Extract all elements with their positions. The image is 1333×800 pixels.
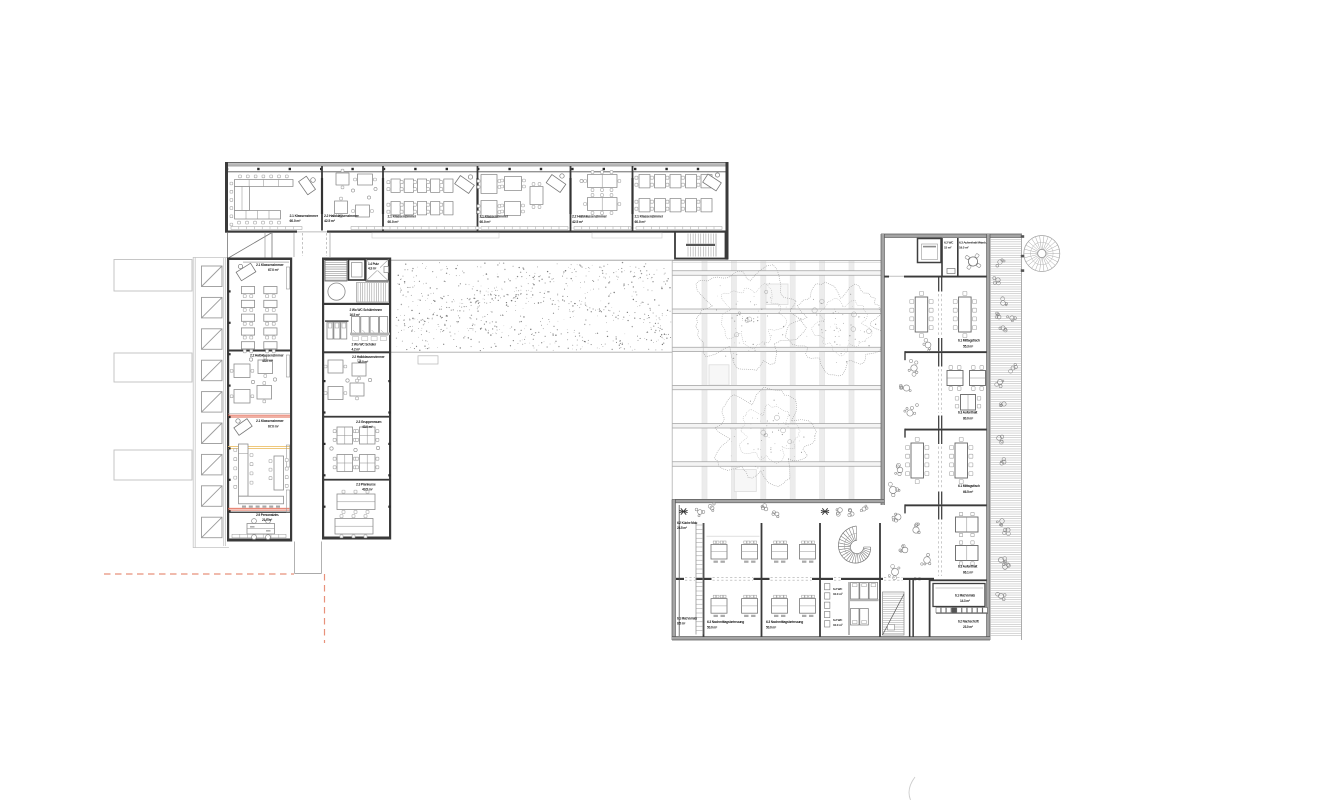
svg-text:2.1 Klassenzimmer: 2.1 Klassenzimmer — [290, 214, 319, 218]
svg-text:50.0 m²: 50.0 m² — [766, 626, 777, 630]
svg-text:14.3 m²: 14.3 m² — [960, 599, 970, 603]
svg-text:15 m²: 15 m² — [944, 246, 951, 250]
svg-text:43.0 m²: 43.0 m² — [262, 359, 273, 363]
svg-text:42.5 m²: 42.5 m² — [572, 220, 584, 224]
svg-text:2.9 Personalzim.: 2.9 Personalzim. — [256, 513, 279, 517]
svg-text:24.5 m²: 24.5 m² — [677, 526, 687, 530]
svg-text:6.1 Mat.Vorrats: 6.1 Mat.Vorrats — [955, 594, 975, 598]
svg-text:80.0 m²: 80.0 m² — [963, 417, 974, 421]
svg-text:42.5 m²: 42.5 m² — [324, 219, 336, 223]
svg-text:2.1 Klassenzimmer: 2.1 Klassenzimmer — [256, 419, 284, 423]
svg-text:2.1 Klassenzimmer: 2.1 Klassenzimmer — [480, 215, 509, 219]
svg-text:49.5 m²: 49.5 m² — [362, 488, 373, 492]
svg-text:1.4 Putz: 1.4 Putz — [368, 262, 379, 266]
svg-text:21.0 m²: 21.0 m² — [262, 518, 273, 522]
svg-text:66.5 m²: 66.5 m² — [963, 490, 974, 494]
svg-text:66.1 m²: 66.1 m² — [963, 571, 974, 575]
svg-text:6.3 Nachmittagsbetreuung: 6.3 Nachmittagsbetreuung — [766, 620, 803, 624]
svg-text:6.3 Aufenthalt Mitarb.: 6.3 Aufenthalt Mitarb. — [959, 241, 987, 245]
svg-text:2.2 Halbklassenzimmer: 2.2 Halbklassenzimmer — [324, 214, 360, 218]
svg-text:60.0 m²: 60.0 m² — [290, 219, 302, 223]
svg-text:67.0 m²: 67.0 m² — [268, 425, 279, 429]
svg-text:6.1 Mittagstisch: 6.1 Mittagstisch — [958, 484, 980, 488]
svg-text:2.2 Halbklassenzimmer: 2.2 Halbklassenzimmer — [352, 355, 385, 359]
svg-text:19.5 m²: 19.5 m² — [959, 246, 969, 250]
svg-text:6.1 Mittagstisch: 6.1 Mittagstisch — [958, 339, 980, 343]
svg-text:60.0 m²: 60.0 m² — [635, 220, 647, 224]
svg-text:6.3 Aufenthalt: 6.3 Aufenthalt — [958, 565, 978, 569]
svg-text:2 Wo WC Schüler: 2 Wo WC Schüler — [352, 342, 377, 346]
svg-text:43.0 m²: 43.0 m² — [358, 360, 369, 364]
svg-text:6.3 Nachmittagsbetreuung: 6.3 Nachmittagsbetreuung — [707, 620, 744, 624]
svg-text:6.2 WC: 6.2 WC — [833, 587, 843, 591]
svg-text:2.1 Klassenzimmer: 2.1 Klassenzimmer — [635, 215, 664, 219]
svg-text:4.2 m²: 4.2 m² — [352, 348, 362, 352]
svg-text:6.1 Mat.Vorrats: 6.1 Mat.Vorrats — [677, 617, 697, 621]
svg-text:6.2 Nachschl.lft: 6.2 Nachschl.lft — [958, 620, 980, 624]
svg-text:6.2 WC: 6.2 WC — [833, 618, 843, 622]
svg-text:2.1 Klassenzimmer: 2.1 Klassenzimmer — [256, 263, 284, 267]
svg-text:55.3 m²: 55.3 m² — [963, 345, 974, 349]
svg-text:50.0 m²: 50.0 m² — [707, 626, 718, 630]
svg-text:6.2 WC: 6.2 WC — [944, 241, 954, 245]
svg-text:2.3 Plankurse: 2.3 Plankurse — [356, 482, 376, 486]
svg-text:2.3 Gruppenraum: 2.3 Gruppenraum — [356, 420, 382, 424]
svg-text:6.3 Aufenthalt: 6.3 Aufenthalt — [958, 411, 978, 415]
svg-text:60.0 m²: 60.0 m² — [388, 220, 400, 224]
svg-text:4.3 m²: 4.3 m² — [368, 267, 376, 271]
svg-text:10.0 m²: 10.0 m² — [833, 623, 843, 627]
svg-text:2 Wo WC Schülerinnen: 2 Wo WC Schülerinnen — [350, 308, 383, 312]
svg-text:8.5 m²: 8.5 m² — [677, 622, 685, 626]
svg-text:2.1 Klassenzimmer: 2.1 Klassenzimmer — [388, 215, 417, 219]
svg-text:16.5 m²: 16.5 m² — [350, 313, 361, 317]
svg-text:60.0 m²: 60.0 m² — [480, 220, 492, 224]
svg-text:43.0 m²: 43.0 m² — [362, 425, 373, 429]
svg-text:2.2 Halbklassenzimmer: 2.2 Halbklassenzimmer — [572, 215, 608, 219]
svg-text:23.0 m²: 23.0 m² — [963, 625, 973, 629]
svg-text:67.0 m²: 67.0 m² — [268, 268, 279, 272]
svg-text:10.0 m²: 10.0 m² — [833, 592, 843, 596]
svg-text:6.2 Küche Mob: 6.2 Küche Mob — [677, 521, 697, 525]
svg-text:2.2 Halbklassenzimmer: 2.2 Halbklassenzimmer — [250, 354, 284, 358]
